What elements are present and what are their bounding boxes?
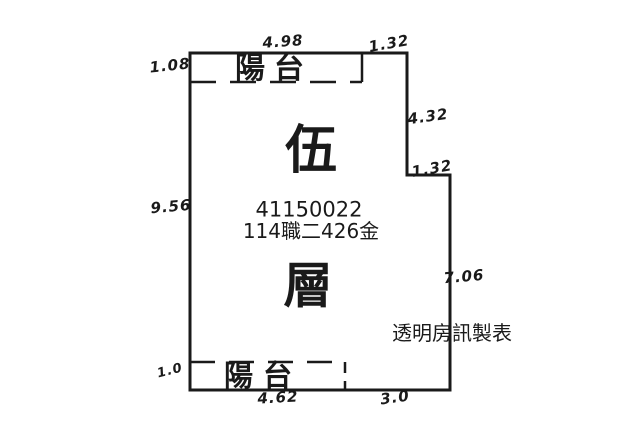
dim-left-balcony-depth: 1.08 xyxy=(149,56,191,75)
registration-number: 41150022 xyxy=(256,200,363,221)
dim-top-width: 4.98 xyxy=(262,33,304,51)
dim-bottom-right-width: 3.0 xyxy=(379,389,410,408)
case-label: 114職二426金 xyxy=(243,221,379,241)
dim-left-height: 9.56 xyxy=(150,198,192,217)
balcony-top-label: 陽台 xyxy=(235,54,313,84)
dim-right-lower-height: 7.06 xyxy=(443,268,485,287)
credit-text: 透明房訊製表 xyxy=(392,323,512,343)
floor-char-bottom: 層 xyxy=(283,262,332,311)
floor-plan-page: 4.98 1.32 1.08 4.32 1.32 9.56 7.06 1.0 4… xyxy=(0,0,640,444)
floor-char-top: 伍 xyxy=(285,125,337,177)
balcony-bottom-label: 陽台 xyxy=(224,362,302,391)
